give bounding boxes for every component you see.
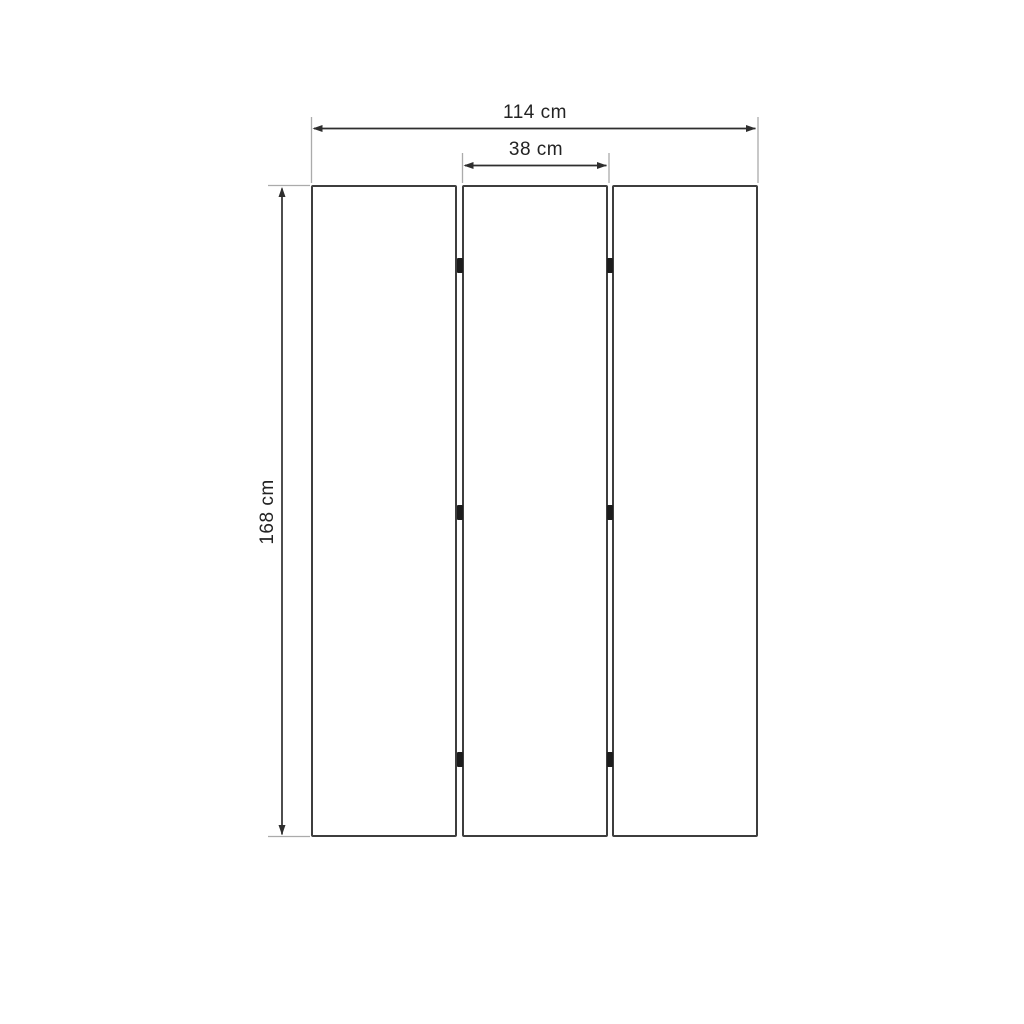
screen-panel-middle: [462, 185, 608, 837]
hinge-left-middle: [457, 505, 463, 520]
dimension-drawing-canvas: 114 cm 38 cm 168 cm: [0, 0, 1024, 1024]
hinge-right-top: [607, 258, 613, 273]
total-width-dimension-label: 114 cm: [455, 102, 615, 124]
hinge-right-middle: [607, 505, 613, 520]
height-dimension-label: 168 cm: [257, 479, 279, 544]
hinge-right-bottom: [607, 752, 613, 767]
screen-panel-left: [311, 185, 457, 837]
screen-panel-right: [612, 185, 758, 837]
panel-width-dimension-label: 38 cm: [456, 139, 616, 161]
hinge-left-bottom: [457, 752, 463, 767]
hinge-left-top: [457, 258, 463, 273]
